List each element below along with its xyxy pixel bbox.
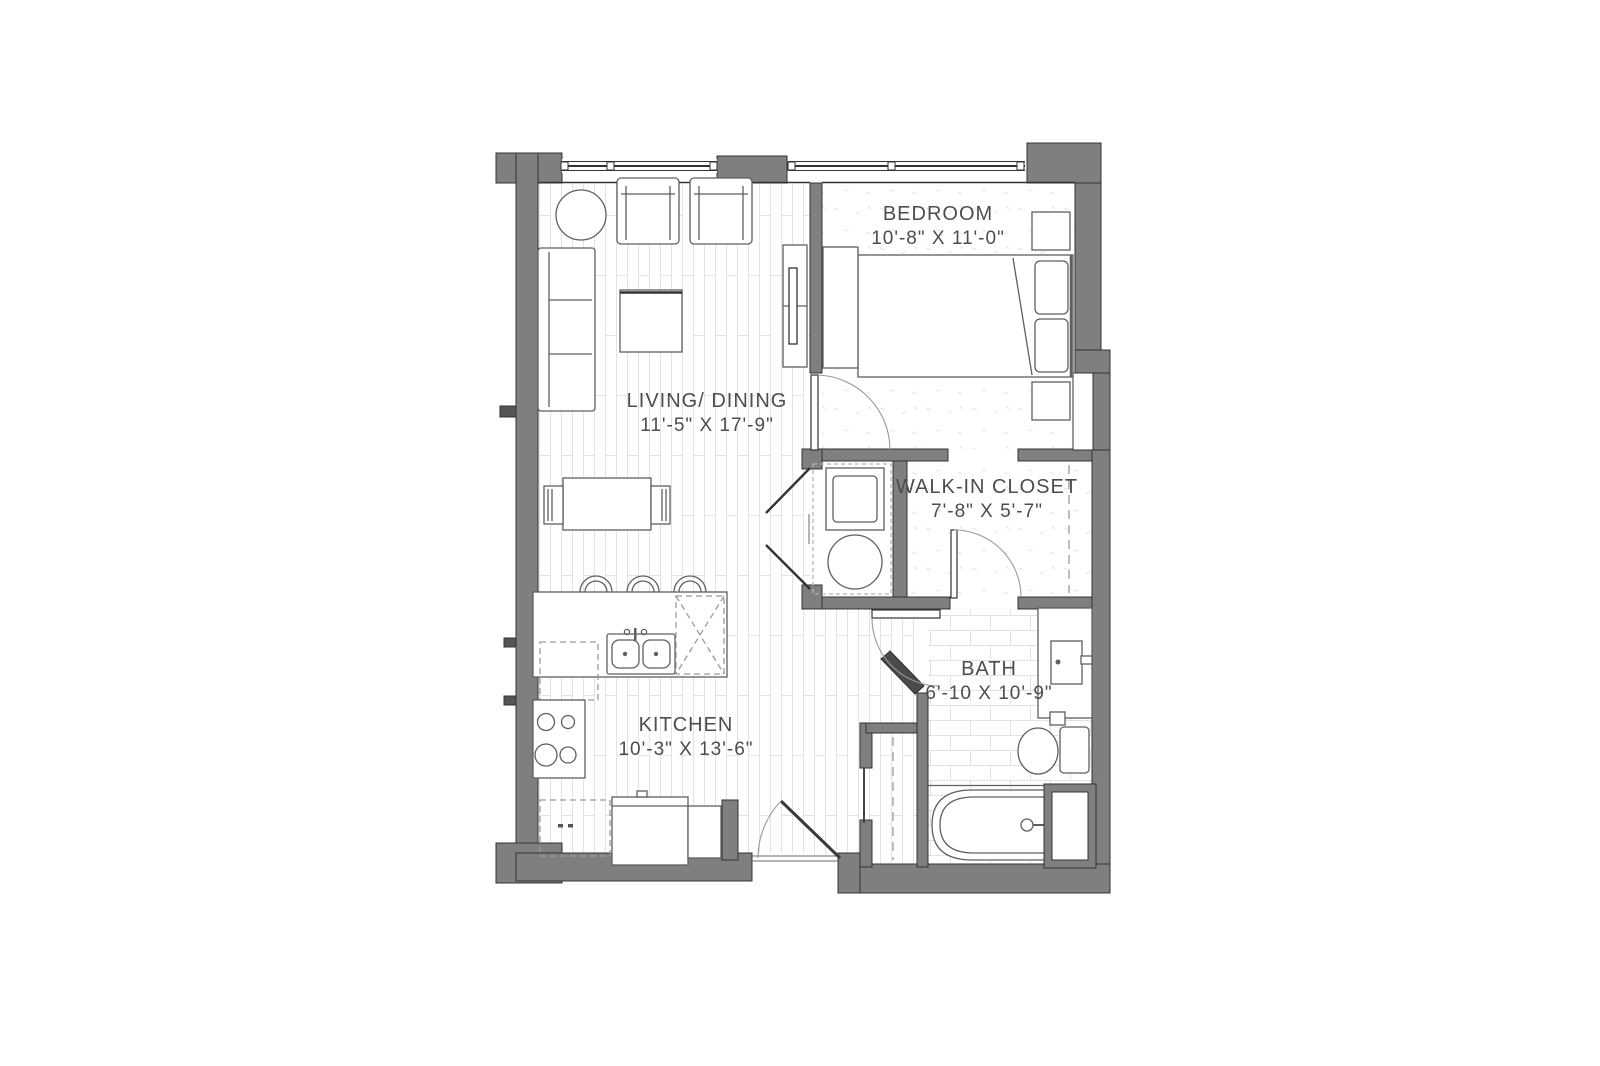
window-mullion [888, 162, 895, 170]
kitchen-cabinet [688, 806, 721, 858]
tv [789, 268, 797, 344]
tub-drain [1021, 819, 1033, 831]
fridge-handle [637, 791, 647, 797]
window-mullion [1017, 162, 1024, 170]
side-table [556, 190, 606, 240]
wall-right-niche-strip [1093, 373, 1110, 450]
nightstand-2 [1032, 382, 1070, 420]
toilet-tank [1060, 727, 1089, 773]
entry-threshold [752, 856, 838, 861]
toilet-bowl [1018, 728, 1058, 774]
floor-plan-page: BEDROOM 10'-8" X 11'-0" LIVING/ DINING 1… [0, 0, 1600, 1066]
living-label: LIVING/ DINING [627, 390, 788, 412]
pillow-2 [1035, 319, 1068, 372]
bedroom-dims: 10'-8" X 11'-0" [871, 228, 1005, 249]
wall-bath-chase [917, 693, 928, 867]
bath-door-leaf [872, 610, 940, 618]
bath-dims: 6'-10 X 10'-9" [925, 683, 1052, 704]
wall-entry-stub [722, 800, 738, 860]
living-dims: 11'-5" X 17'-9" [640, 415, 774, 436]
vanity-faucet [1081, 656, 1092, 664]
wall-coat-closet-left-bottom [860, 820, 872, 867]
dining-table [563, 478, 651, 530]
coffee-table [620, 290, 682, 352]
wall-right-upper [1075, 183, 1101, 350]
kitchen-dims: 10'-3" X 13'-6" [618, 739, 753, 760]
bedroom-door-leaf [811, 375, 818, 450]
dining-chair-right [651, 486, 670, 524]
sofa [538, 248, 595, 411]
window-mullion [561, 162, 568, 170]
vanity-ledge [1050, 712, 1065, 725]
window-mullion [710, 162, 717, 170]
dining-chair-left [544, 486, 563, 524]
wall-laundry-bottom [810, 597, 950, 609]
nightstand-1 [1032, 212, 1070, 250]
wall-closet-bottom-right [1018, 597, 1092, 609]
wall-left-tick-2 [504, 638, 516, 647]
wall-left-tick-3 [504, 696, 516, 705]
wall-corner-top-right [1027, 143, 1101, 183]
burner [560, 747, 576, 763]
wall-right-step [1075, 350, 1110, 373]
floor-plan-svg: BEDROOM 10'-8" X 11'-0" LIVING/ DINING 1… [0, 0, 1600, 1066]
burner [538, 714, 555, 731]
window-mullion [607, 162, 614, 170]
stove [533, 700, 585, 778]
closet-dims: 7'-8" X 5'-7" [931, 501, 1043, 522]
pillow-1 [1035, 261, 1068, 314]
wall-bifold-stub-top [802, 449, 822, 469]
closet-label: WALK-IN CLOSET [896, 476, 1078, 498]
dryer [828, 535, 882, 589]
window-mullion [788, 162, 795, 170]
linen-closet-inner [1052, 792, 1088, 860]
washer-door [833, 476, 877, 522]
dresser [823, 247, 858, 368]
sink-faucet [634, 628, 637, 641]
closet-door-leaf [951, 530, 957, 598]
coat-closet-floor [872, 733, 917, 863]
burner [535, 744, 557, 766]
wall-bedroom-bottom-right [1018, 449, 1092, 461]
wall-left-tick-1 [500, 406, 516, 417]
wall-bedroom-bottom-left [810, 449, 948, 461]
wall-bifold-stub-bottom [802, 585, 822, 609]
burner [562, 716, 575, 729]
bedroom-window-niche [1073, 373, 1093, 450]
wall-living-bedroom [810, 183, 822, 373]
refrigerator [612, 797, 688, 865]
bath-label: BATH [961, 658, 1017, 680]
kitchen-label: KITCHEN [639, 714, 734, 736]
bedroom-label: BEDROOM [883, 203, 993, 225]
